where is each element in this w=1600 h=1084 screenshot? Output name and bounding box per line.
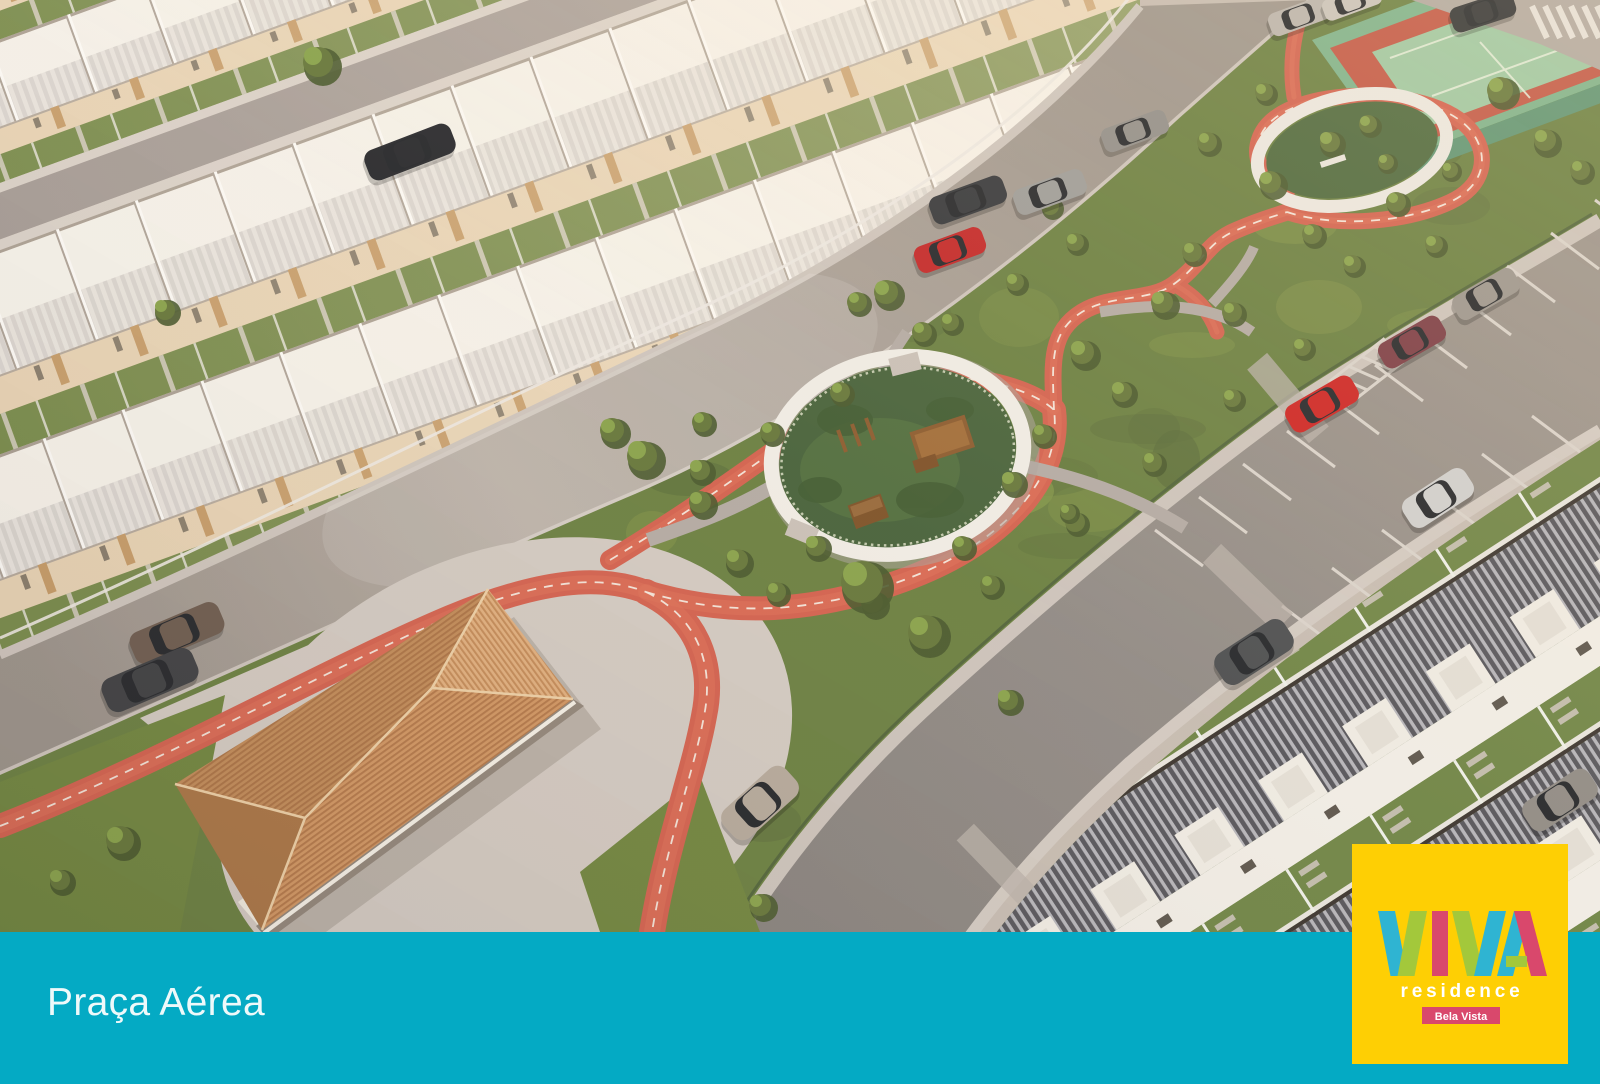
svg-text:Bela Vista: Bela Vista: [1435, 1011, 1488, 1023]
svg-text:residence: residence: [1401, 981, 1524, 1002]
svg-text:Praça Aérea: Praça Aérea: [47, 981, 265, 1024]
